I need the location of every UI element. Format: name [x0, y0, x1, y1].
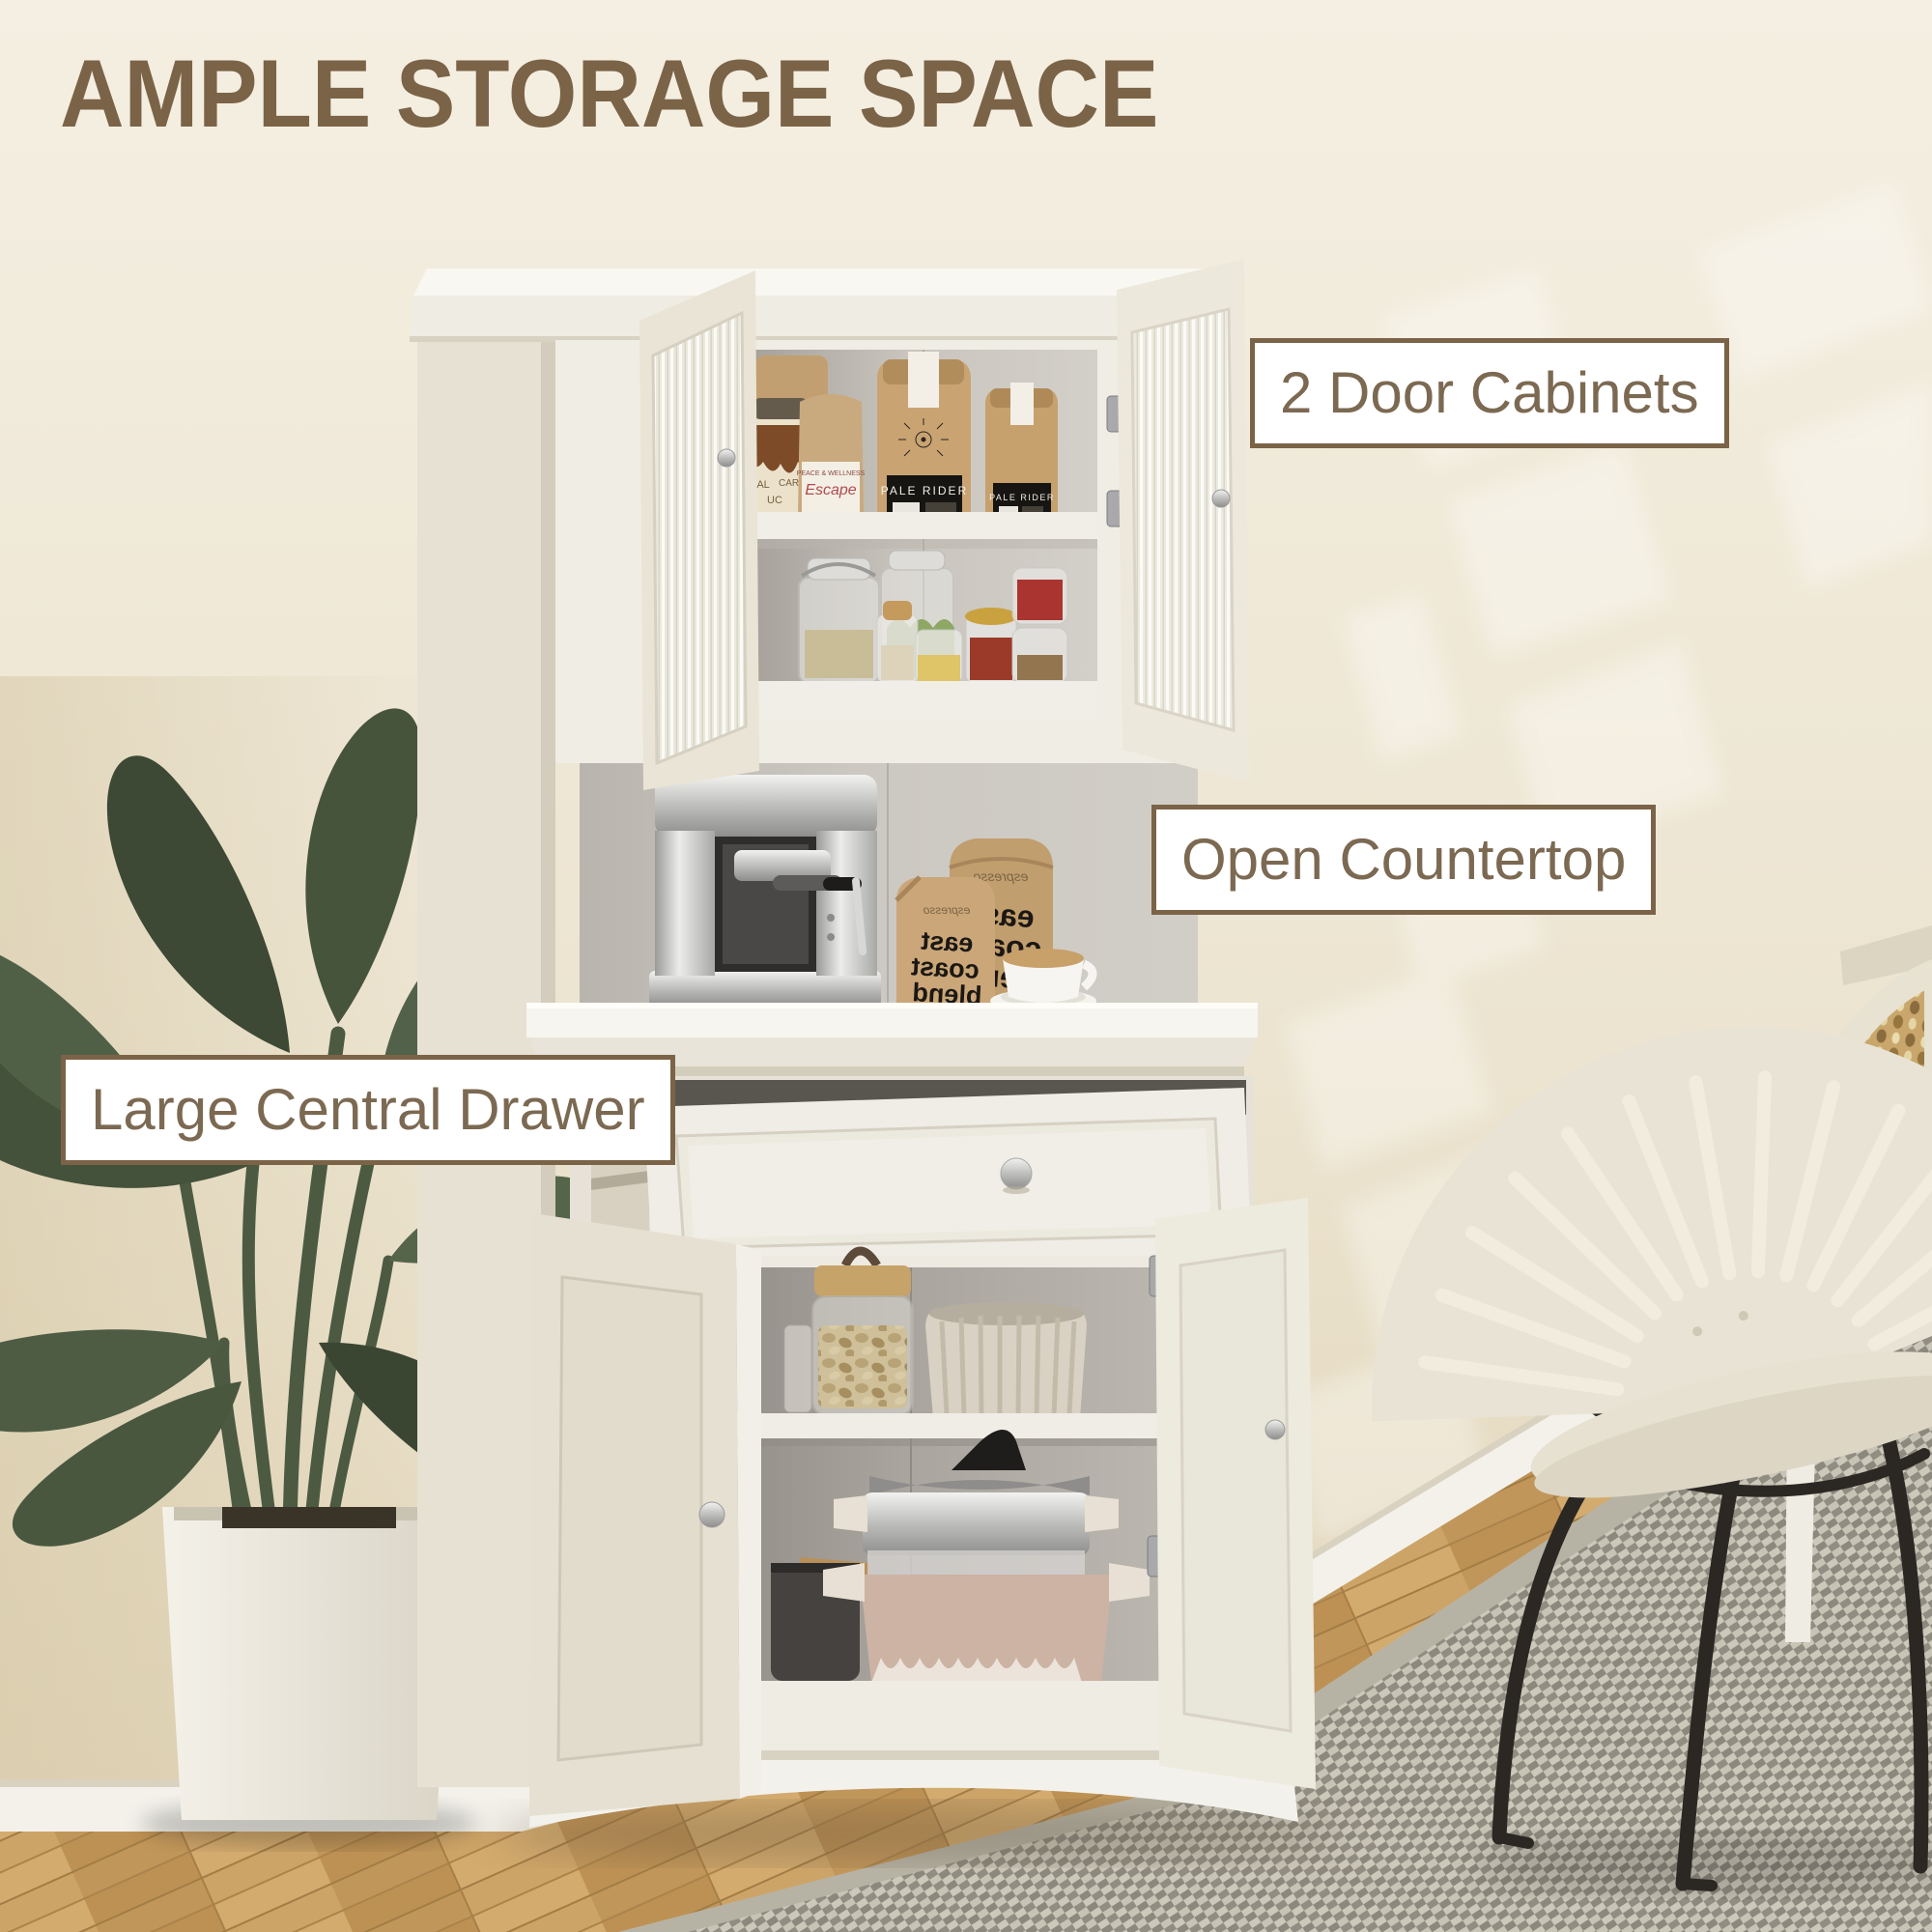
wellness-text2: Escape	[805, 482, 856, 498]
blend-text-front: east coast blend	[910, 926, 982, 1010]
base-door-left-knob	[699, 1502, 724, 1527]
page-title: AMPLE STORAGE SPACE	[60, 39, 1158, 149]
espresso-script-front: espresso	[923, 903, 970, 917]
coffee-bag-label: PALE RIDER	[881, 484, 968, 497]
wellness-text1: PEACE & WELLNESS	[797, 470, 866, 477]
kitchen-pantry-cabinet: TRAVA SAL CARAMEL UC PEACE & WELLNESS Es…	[410, 259, 1316, 1828]
fluted-glass-right	[1132, 309, 1234, 730]
base-door-right-knob	[1265, 1420, 1285, 1439]
cork-jar	[877, 601, 918, 683]
callout-door-cabinets: 2 Door Cabinets	[1250, 338, 1729, 448]
fluted-bowl	[925, 1302, 1087, 1418]
hutch-bottom-shelf	[752, 681, 1097, 720]
room-scene: TRAVA SAL CARAMEL UC PEACE & WELLNESS Es…	[0, 0, 1932, 1932]
planter	[162, 1507, 456, 1820]
caramel-text-bottom: UC	[767, 495, 782, 506]
clamp-jar-seeds	[799, 558, 879, 683]
drawer-knob	[1001, 1158, 1032, 1189]
hutch-shelf	[752, 512, 1097, 539]
callout-open-countertop: Open Countertop	[1151, 805, 1656, 915]
coffee-bag-small: PALE RIDER	[985, 383, 1058, 522]
base-door-left	[529, 1213, 761, 1816]
pistachio-jar	[812, 1251, 913, 1415]
crown-molding	[410, 269, 1219, 342]
espresso-machine	[649, 775, 881, 1007]
macaroni-jar	[916, 630, 962, 683]
pepper-flakes-jar	[965, 608, 1017, 683]
base-door-right	[1155, 1198, 1316, 1789]
coffee-bag-large: PALE RIDER	[877, 352, 971, 522]
spice-jars	[799, 551, 1067, 683]
glass-door-right-knob	[1212, 490, 1230, 507]
glass-door-right	[1117, 259, 1250, 782]
cabinet-shadow	[493, 1804, 1343, 1862]
fluted-glass-left	[653, 313, 746, 763]
coffee-bag-label-small: PALE RIDER	[989, 493, 1055, 502]
glass-door-left	[639, 270, 759, 790]
wellness-pouch: PEACE & WELLNESS Escape	[797, 394, 866, 514]
glass-door-left-knob	[718, 449, 735, 467]
product-marketing-image: TRAVA SAL CARAMEL UC PEACE & WELLNESS Es…	[0, 0, 1932, 1932]
callout-central-drawer: Large Central Drawer	[61, 1055, 675, 1165]
